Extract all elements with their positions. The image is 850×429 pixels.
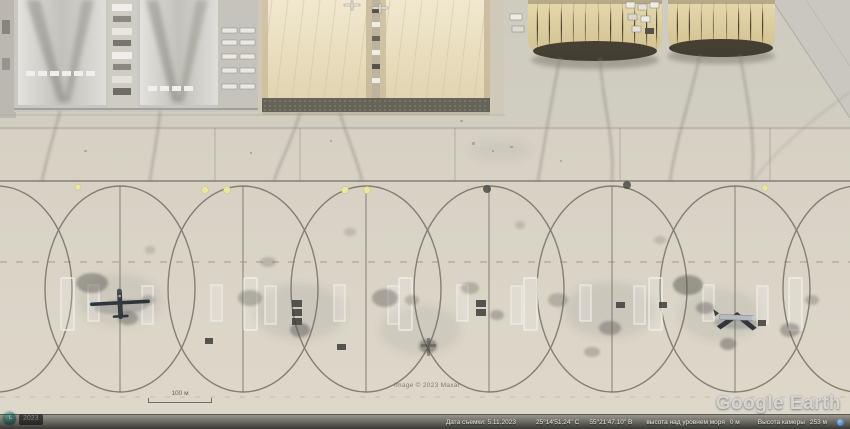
scale-label: 100 м (148, 390, 212, 397)
center-hangar-complex (258, 0, 504, 115)
status-bar: Дата съемки: 5.11.2023 25°14'51.24" С 55… (0, 414, 850, 429)
google-earth-logo: Google Earth (716, 393, 841, 415)
longitude-text: 55°21'47.10" В (589, 419, 632, 426)
elevation-label: высота над уровнем моря (646, 419, 725, 426)
imagery-date-text: Дата съемки: 5.11.2023 (446, 419, 516, 426)
scale-bar: 100 м (148, 390, 212, 403)
latitude-text: 25°14'51.24" С (536, 419, 579, 426)
left-hangar-complex (0, 0, 260, 118)
map-canvas[interactable]: Image © 2023 Maxar Google Earth 100 м 20… (0, 0, 850, 429)
imagery-attribution: Image © 2023 Maxar (394, 382, 460, 389)
blue-dot-icon[interactable] (837, 419, 844, 426)
scale-line (148, 398, 212, 403)
camera-altitude-label: Высота камеры (758, 419, 805, 426)
elevation-value: 0 м (730, 419, 740, 426)
satellite-imagery (0, 0, 850, 429)
camera-altitude-value: 253 м (810, 419, 827, 426)
